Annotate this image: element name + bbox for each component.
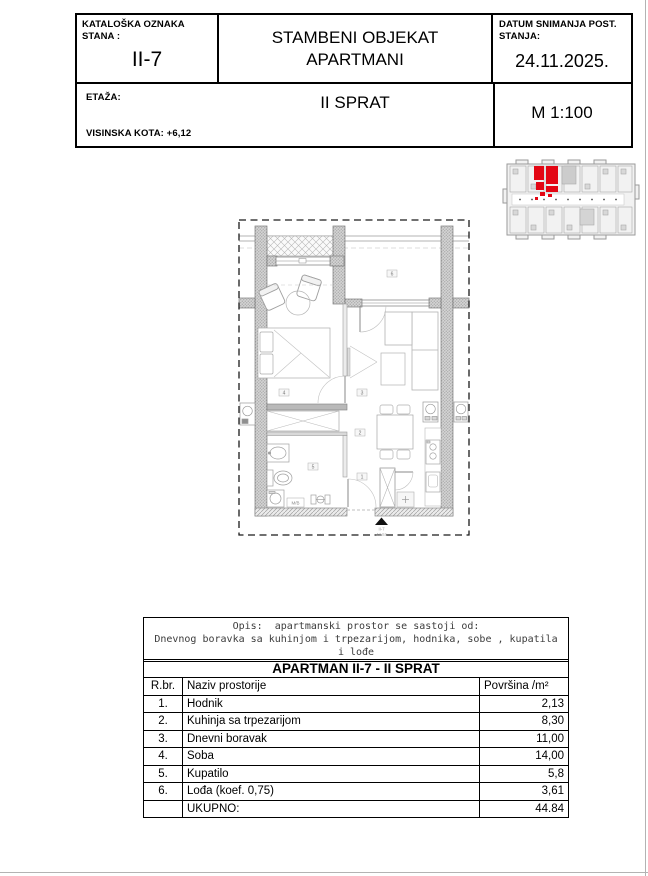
- wardrobe-symbol: [267, 411, 339, 431]
- row-num: 5.: [144, 765, 183, 783]
- drawing-sheet: { "header": { "catalog_label_line1": "KA…: [0, 0, 648, 876]
- col-header-rbr: R.br.: [144, 678, 183, 696]
- washing-machine-symbol: [267, 490, 284, 507]
- row-area: 14,00: [480, 748, 569, 766]
- washer-label-box: M/B: [287, 498, 304, 507]
- entrance-door: [395, 472, 413, 490]
- bottom-wall-left: [255, 508, 347, 516]
- etaza-value: II SPRAT: [217, 93, 493, 113]
- sheet-edge-bottom: [0, 872, 648, 873]
- svg-text:4: 4: [283, 391, 286, 397]
- ac-unit-right-inner: [423, 402, 438, 422]
- description-box: Opis: apartmanski prostor se sastoji od:…: [143, 617, 569, 662]
- scale-value: M 1:100: [493, 103, 631, 123]
- loggia-door: [360, 306, 386, 332]
- room-tag-kuhinja: 2: [355, 429, 365, 437]
- coffee-table-symbol: [381, 353, 405, 385]
- washer-label: M/B: [291, 501, 299, 506]
- shoe-cabinet-symbol: [397, 492, 414, 507]
- object-title-line1: STAMBENI OBJEKAT: [272, 27, 439, 49]
- radiator-symbol: [311, 495, 330, 504]
- date-label-line2: STANJA:: [499, 31, 625, 43]
- room-tag-hodnik: 1: [357, 473, 367, 481]
- table-total-row: UKUPNO: 44.84: [144, 800, 569, 818]
- row-name: Hodnik: [183, 695, 480, 713]
- window-stub-left: [267, 256, 277, 266]
- total-value: 44.84: [480, 800, 569, 818]
- key-plan-corridor: [512, 194, 624, 205]
- description-line1: Opis: apartmanski prostor se sastoji od:: [146, 620, 566, 633]
- row-name: Dnevni boravak: [183, 730, 480, 748]
- total-label: UKUPNO:: [183, 800, 480, 818]
- row-num: 1.: [144, 695, 183, 713]
- sheet-edge-right: [645, 0, 646, 876]
- bottom-wall-right: [375, 508, 453, 516]
- wall-stub-left: [239, 298, 255, 308]
- row-area: 11,00: [480, 730, 569, 748]
- description-line2: Dnevnog boravka sa kuhinjom i trpezarijo…: [146, 633, 566, 646]
- total-empty-cell: [144, 800, 183, 818]
- table-row: 6. Lođa (koef. 0,75) 3,61: [144, 783, 569, 801]
- table-row: 1. Hodnik 2,13: [144, 695, 569, 713]
- row-area: 5,8: [480, 765, 569, 783]
- catalog-value: II-7: [82, 48, 212, 72]
- date-value: 24.11.2025.: [499, 51, 625, 72]
- room-table: R.br. Naziv prostorije Površina /m² 1. H…: [143, 677, 569, 818]
- toilet-symbol: [267, 470, 292, 486]
- catalog-label-line1: KATALOŠKA OZNAKA: [82, 19, 212, 31]
- row-num: 3.: [144, 730, 183, 748]
- row-area: 3,61: [480, 783, 569, 801]
- svg-text:2: 2: [359, 431, 362, 437]
- room-tag-soba: 4: [279, 389, 289, 397]
- kitchen-sink-symbol: [426, 472, 440, 492]
- apartment-title: APARTMAN II-7 - II SPRAT: [143, 659, 569, 678]
- svg-text:1: 1: [361, 475, 364, 481]
- catalog-cell: KATALOŠKA OZNAKA STANA : II-7: [77, 15, 219, 82]
- bed-symbol: [258, 328, 330, 378]
- row-num: 6.: [144, 783, 183, 801]
- bathroom-door: [348, 479, 376, 507]
- title-block-row1: KATALOŠKA OZNAKA STANA : II-7 STAMBENI O…: [77, 15, 631, 84]
- wall-stub-middle: [345, 299, 362, 307]
- room-table-header-row: R.br. Naziv prostorije Površina /m²: [144, 678, 569, 696]
- soba-door: [318, 376, 345, 403]
- hatched-loggia-strip: [267, 236, 333, 256]
- wall-right: [441, 226, 453, 516]
- catalog-label-line2: STANA :: [82, 31, 212, 43]
- ac-unit-right-outer: [454, 402, 468, 422]
- object-title-line2: APARTMANI: [306, 49, 404, 71]
- row-name: Lođa (koef. 0,75): [183, 783, 480, 801]
- entrance-area-label: 44.84: [376, 532, 387, 537]
- row-name: Kuhinja sa trpezarijom: [183, 713, 480, 731]
- row-area: 8,30: [480, 713, 569, 731]
- entrance-marker-icon: [375, 518, 388, 526]
- description-line3: i lođe: [146, 646, 566, 659]
- svg-text:5: 5: [312, 465, 315, 471]
- room-table-wrapper: R.br. Naziv prostorije Površina /m² 1. H…: [143, 677, 569, 818]
- tv-symbol: [348, 346, 378, 378]
- kota-label: VISINSKA KOTA: +6,12: [86, 128, 191, 140]
- entry-closet-symbol: [380, 468, 395, 507]
- row-name: Soba: [183, 748, 480, 766]
- table-row: 5. Kupatilo 5,8: [144, 765, 569, 783]
- entrance-unit-label: II-7: [378, 527, 385, 532]
- date-label-line1: DATUM SNIMANJA POST.: [499, 19, 625, 31]
- table-row: 4. Soba 14,00: [144, 748, 569, 766]
- date-cell: DATUM SNIMANJA POST. STANJA: 24.11.2025.: [493, 15, 631, 82]
- room-tag-lodja: 6: [387, 270, 397, 278]
- row-area: 2,13: [480, 695, 569, 713]
- room-tag-kupatilo: 5: [308, 463, 318, 471]
- col-header-area: Površina /m²: [480, 678, 569, 696]
- floor-plan: M/B: [225, 200, 485, 550]
- col-header-name: Naziv prostorije: [183, 678, 480, 696]
- dining-set-symbol: [377, 405, 413, 459]
- wall-stub-right-inner: [429, 298, 441, 308]
- svg-text:6: 6: [391, 272, 394, 278]
- room-tag-dnevni-boravak: 3: [357, 389, 367, 397]
- row-num: 4.: [144, 748, 183, 766]
- sink-symbol: [267, 444, 289, 462]
- loggia-window: [362, 300, 429, 306]
- title-block: KATALOŠKA OZNAKA STANA : II-7 STAMBENI O…: [75, 13, 633, 148]
- etaza-label: ETAŽA:: [86, 92, 121, 104]
- window-stub-right: [330, 256, 344, 266]
- svg-text:3: 3: [361, 391, 364, 397]
- table-row: 3. Dnevni boravak 11,00: [144, 730, 569, 748]
- row-num: 2.: [144, 713, 183, 731]
- ac-unit-left: [240, 403, 255, 425]
- stove-symbol: [426, 440, 440, 464]
- key-plan: [502, 157, 640, 242]
- table-row: 2. Kuhinja sa trpezarijom 8,30: [144, 713, 569, 731]
- object-title-cell: STAMBENI OBJEKAT APARTMANI: [219, 15, 493, 82]
- wall-stub-right-outer: [453, 298, 469, 308]
- soba-window: [276, 257, 330, 265]
- bottom-walls: [255, 508, 453, 516]
- title-block-row2: ETAŽA: II SPRAT VISINSKA KOTA: +6,12 M 1…: [77, 84, 631, 146]
- row-name: Kupatilo: [183, 765, 480, 783]
